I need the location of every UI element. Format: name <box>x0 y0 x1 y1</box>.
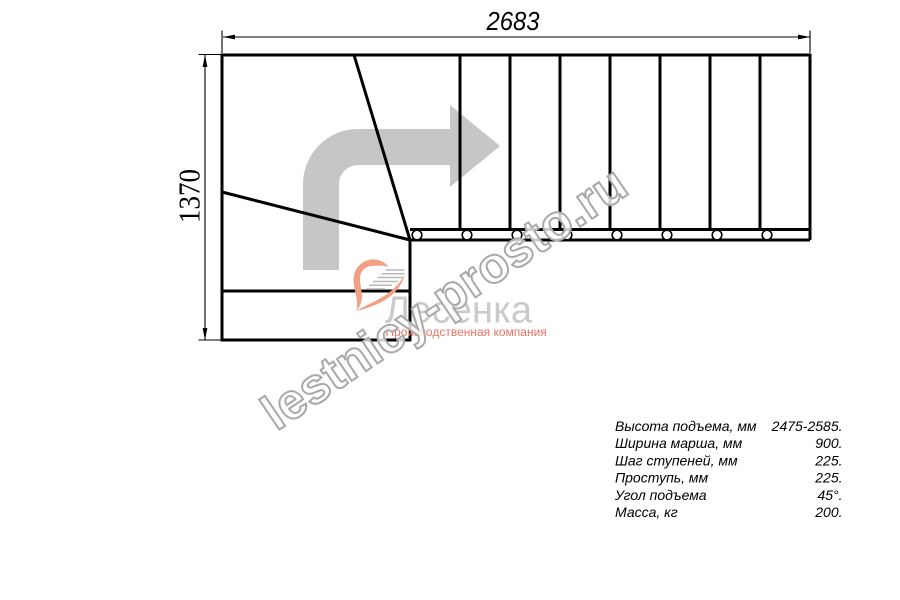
svg-text:Ширина марша, мм: Ширина марша, мм <box>615 435 743 451</box>
svg-text:Угол подъема: Угол подъема <box>614 487 707 503</box>
svg-text:45°.: 45°. <box>817 487 842 503</box>
svg-text:1370: 1370 <box>172 169 207 223</box>
svg-text:Высота подъема, мм: Высота подъема, мм <box>615 418 757 434</box>
svg-text:Проступь, мм: Проступь, мм <box>615 470 709 486</box>
svg-text:900.: 900. <box>815 435 842 451</box>
svg-text:225.: 225. <box>814 452 842 468</box>
svg-text:2475-2585.: 2475-2585. <box>771 418 843 434</box>
svg-text:Шаг ступеней, мм: Шаг ступеней, мм <box>615 452 738 468</box>
svg-text:Масса, кг: Масса, кг <box>615 504 678 520</box>
svg-text:200.: 200. <box>814 504 842 520</box>
svg-text:2683: 2683 <box>486 6 540 36</box>
svg-text:225.: 225. <box>814 470 842 486</box>
